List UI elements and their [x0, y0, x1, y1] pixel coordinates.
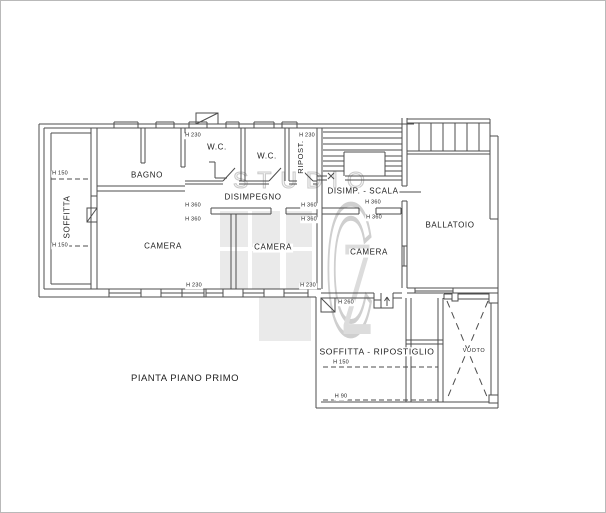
height-label: H 230: [185, 283, 203, 289]
height-label: H 360: [365, 215, 383, 221]
height-label: H 230: [184, 133, 202, 139]
room-label-wc-2: W.C.: [256, 153, 278, 162]
height-label: H 360: [184, 203, 202, 209]
labels-layer: SOFFITTABAGNOW.C.W.C.RIPOST.DISIMPEGNODI…: [1, 1, 605, 512]
room-label-soffitta-ripostiglio: SOFFITTA - RIPOSTIGLIO: [318, 347, 435, 356]
height-label: H 360: [300, 203, 318, 209]
height-label: H 360: [184, 217, 202, 223]
room-label-ballatoio: BALLATOIO: [424, 222, 475, 231]
height-label: H 260: [337, 300, 355, 306]
room-label-disimpegno-scala: DISIMP. - SCALA: [326, 188, 399, 197]
room-label-bagno: BAGNO: [130, 172, 164, 181]
height-label: H 150: [51, 243, 69, 249]
room-label-disimpegno: DISIMPEGNO: [223, 194, 282, 203]
room-label-camera-left: CAMERA: [143, 243, 183, 252]
height-label: H 230: [298, 133, 316, 139]
height-label: H 150: [51, 171, 69, 177]
room-label-camera-right: CAMERA: [349, 249, 389, 258]
room-label-camera-middle: CAMERA: [253, 244, 293, 253]
room-label-vuoto: VUOTO: [462, 348, 486, 354]
height-label: H 230: [299, 283, 317, 289]
room-label-wc-1: W.C.: [206, 144, 228, 153]
height-label: H 360: [364, 200, 382, 206]
height-label: H 360: [300, 217, 318, 223]
room-label-soffitta: SOFFITTA: [64, 195, 73, 240]
plan-title: PIANTA PIANO PRIMO: [131, 373, 239, 384]
height-label: H 150: [332, 360, 350, 366]
floor-plan-canvas: STUDIO C Z SOFFITTABAGNOW.C.W.C.RIPOST.D: [0, 0, 606, 513]
room-label-ripostiglio: RIPOST.: [297, 139, 305, 174]
height-label: H 90: [334, 394, 348, 400]
